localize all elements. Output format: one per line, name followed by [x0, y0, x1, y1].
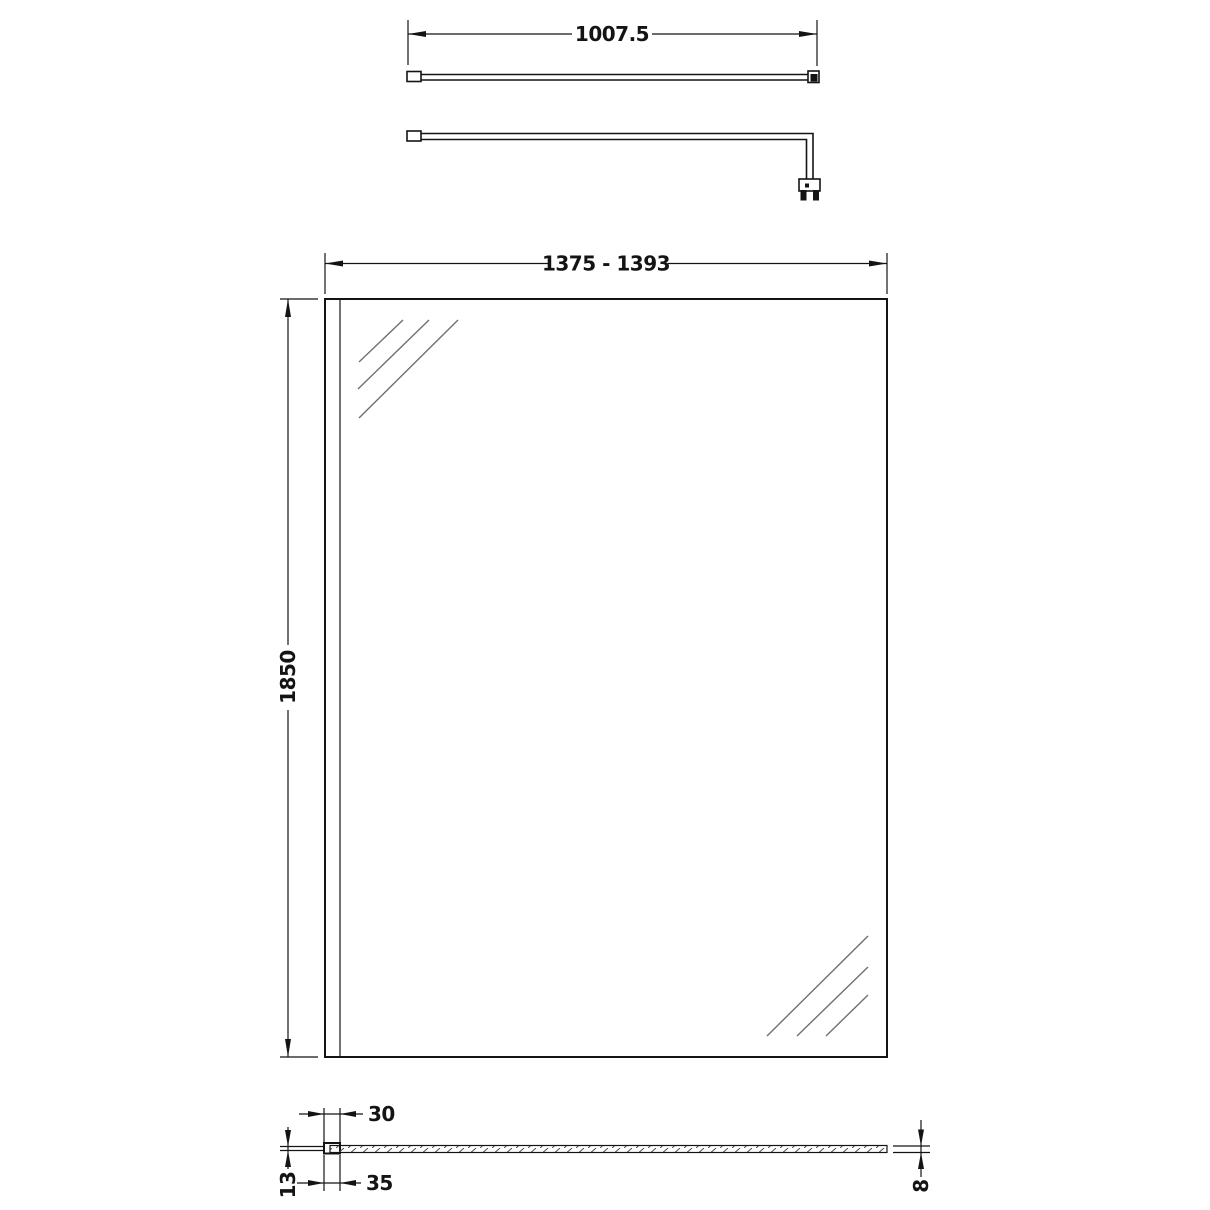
profile-section-view: [280, 1143, 887, 1154]
arrowhead-right: [869, 261, 887, 267]
arrowhead-left: [408, 31, 426, 37]
arrowhead-down: [285, 1130, 291, 1147]
arrowhead-left: [308, 1111, 324, 1117]
bar-tube-outer-edge: [421, 134, 813, 180]
arrowhead-down: [918, 1130, 924, 1147]
technical-drawing-canvas: 1007.5 1375 - 1393: [0, 0, 1210, 1210]
profile-width-dimension: 30: [299, 1102, 395, 1142]
support-bar-plan-view: [407, 71, 819, 83]
glass-section-strip: [330, 1146, 887, 1153]
arrowhead-right: [799, 31, 817, 37]
drawing-svg: 1007.5 1375 - 1393: [0, 0, 1210, 1210]
support-bar-side-view: [407, 131, 820, 201]
panel-width-dimension: 1375 - 1393: [325, 252, 887, 295]
glass-clamp-left-jaw: [801, 190, 807, 201]
bar-wall-end-cap: [407, 131, 421, 141]
glass-panel-front-view: [325, 299, 887, 1057]
arrowhead-bottom: [285, 1039, 291, 1057]
arrowhead-top: [285, 299, 291, 317]
profile-depth-dimension: 13: [276, 1127, 300, 1198]
glass-clamp-right-jaw: [813, 190, 819, 201]
bar-tube-inner-edge: [421, 140, 807, 180]
bar-glass-bracket-body: [811, 74, 818, 82]
panel-width-label: 1375 - 1393: [542, 252, 670, 276]
profile-overall-width-label: 35: [366, 1171, 393, 1195]
bar-length-label: 1007.5: [575, 22, 649, 46]
arrowhead-up: [285, 1151, 291, 1168]
glass-thickness-dimension: 8: [893, 1120, 933, 1193]
bar-wall-end-cap: [407, 72, 421, 82]
arrowhead-right: [340, 1111, 356, 1117]
arrowhead-left: [325, 261, 343, 267]
profile-depth-label: 13: [276, 1172, 300, 1199]
glass-clamp-block: [799, 179, 820, 191]
glass-thickness-label: 8: [909, 1179, 933, 1192]
clamp-screw: [805, 184, 809, 188]
arrowhead-right: [340, 1180, 356, 1186]
arrowhead-left: [308, 1180, 324, 1186]
profile-width-label: 30: [368, 1102, 395, 1126]
arrowhead-up: [918, 1153, 924, 1170]
bar-length-dimension: 1007.5: [408, 20, 817, 66]
glass-panel-outline: [325, 299, 887, 1057]
panel-height-dimension: 1850: [276, 299, 318, 1057]
profile-overall-width-dimension: 35: [297, 1155, 393, 1195]
panel-height-label: 1850: [276, 650, 300, 704]
